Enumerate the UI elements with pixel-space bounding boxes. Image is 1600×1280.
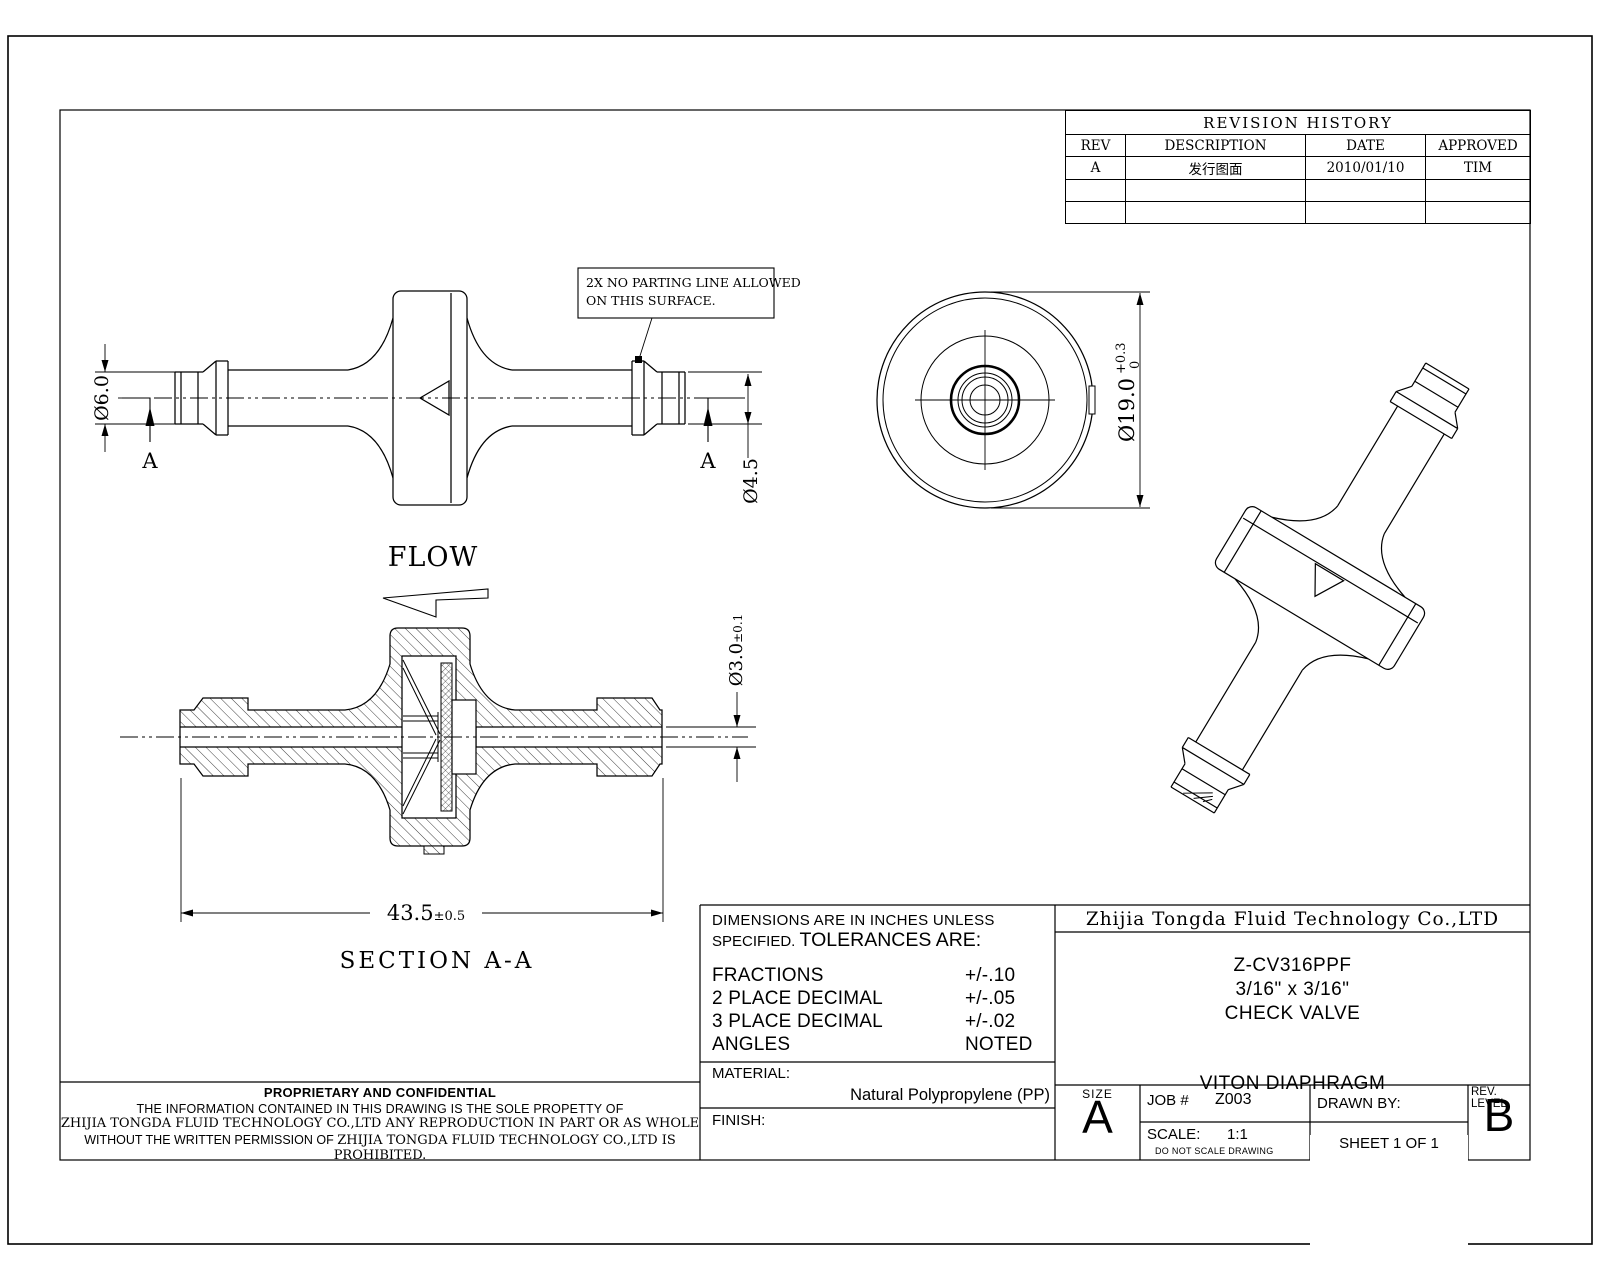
tolerance-row: 3 PLACE DECIMAL+/-.02 xyxy=(712,1011,1042,1033)
revision-table-title: REVISION HISTORY xyxy=(1066,111,1531,135)
body-tab xyxy=(424,846,444,854)
rev-cell: A xyxy=(1066,157,1126,179)
date-cell: 2010/01/10 xyxy=(1306,157,1426,179)
dim-dia3: Ø3.0 xyxy=(726,643,747,686)
dim-dia3-tol: ±0.1 xyxy=(731,614,745,643)
svg-text:43.5±0.5: 43.5±0.5 xyxy=(387,901,465,925)
proprietary-block: PROPRIETARY AND CONFIDENTIAL THE INFORMA… xyxy=(60,1082,700,1160)
flow-annotation: FLOW xyxy=(383,542,488,617)
side-view xyxy=(118,291,745,505)
col-header-rev: REV xyxy=(1066,135,1126,157)
flow-label: FLOW xyxy=(388,542,479,573)
company-name: Zhijia Tongda Fluid Technology Co.,LTD xyxy=(1055,909,1530,930)
tolerance-row: FRACTIONS+/-.10 xyxy=(712,965,1042,987)
dim-dia19: Ø19.0 xyxy=(1115,378,1139,442)
svg-text:Ø3.0±0.1: Ø3.0±0.1 xyxy=(726,614,747,687)
rev-level-value: B xyxy=(1468,1091,1530,1139)
dim-dia19-tol-lower: 0 xyxy=(1128,361,1143,369)
dim-length-tol: ±0.5 xyxy=(434,909,466,924)
proprietary-title: PROPRIETARY AND CONFIDENTIAL xyxy=(60,1085,700,1100)
isometric-view xyxy=(1104,323,1537,854)
dim-dia19-group: Ø19.0 +0.3 0 xyxy=(1114,342,1143,442)
section-marker-right: A xyxy=(699,449,716,473)
tolerance-row: 2 PLACE DECIMAL+/-.05 xyxy=(712,988,1042,1010)
leader-target-dot xyxy=(635,356,642,363)
tolerance-line2: SPECIFIED. TOLERANCES ARE: xyxy=(712,929,981,952)
drawing-sheet: Ø6.0 Ø4.5 A A 2X NO PARTING LINE ALLOWED… xyxy=(0,0,1600,1280)
note-line2: ON THIS SURFACE. xyxy=(586,293,716,308)
table-row: A 发行图面 2010/01/10 TIM xyxy=(1066,157,1531,179)
front-view xyxy=(877,292,1150,508)
size-value: A xyxy=(1055,1093,1140,1141)
part-size: 3/16" x 3/16" xyxy=(1055,979,1530,1001)
dim-dia19-tol-upper: +0.3 xyxy=(1114,342,1129,374)
job-label: JOB # xyxy=(1147,1092,1189,1109)
dim-dia6: Ø6.0 xyxy=(91,375,113,421)
revision-table: REVISION HISTORY REV DESCRIPTION DATE AP… xyxy=(1065,110,1530,224)
tolerance-row: ANGLESNOTED xyxy=(712,1034,1042,1056)
part-type: CHECK VALVE xyxy=(1055,1003,1530,1025)
sheet-label: SHEET 1 OF 1 xyxy=(1310,1135,1468,1280)
proprietary-line3: WITHOUT THE WRITTEN PERMISSION OF ZHIJIA… xyxy=(60,1133,700,1163)
job-value: Z003 xyxy=(1215,1091,1251,1109)
table-row-empty xyxy=(1066,201,1531,223)
col-header-date: DATE xyxy=(1306,135,1426,157)
col-header-description: DESCRIPTION xyxy=(1126,135,1306,157)
dim-length: 43.5 xyxy=(387,901,434,925)
section-view xyxy=(120,628,748,854)
material-value: Natural Polypropylene (PP) xyxy=(795,1086,1050,1105)
section-marker-left: A xyxy=(141,449,158,473)
scale-label: SCALE: xyxy=(1147,1126,1200,1143)
approved-cell: TIM xyxy=(1426,157,1531,179)
material-label: MATERIAL: xyxy=(712,1065,790,1082)
col-header-approved: APPROVED xyxy=(1426,135,1531,157)
note-line1: 2X NO PARTING LINE ALLOWED xyxy=(586,275,801,290)
tolerance-line1: DIMENSIONS ARE IN INCHES UNLESS xyxy=(712,912,995,929)
tolerance-block: DIMENSIONS ARE IN INCHES UNLESS SPECIFIE… xyxy=(700,905,1055,1160)
drawn-by-label: DRAWN BY: xyxy=(1317,1095,1401,1112)
description-cell: 发行图面 xyxy=(1126,157,1306,179)
gate-mark xyxy=(1089,386,1095,414)
proprietary-line2: ZHIJIA TONGDA FLUID TECHNOLOGY CO.,LTD A… xyxy=(60,1116,700,1131)
proprietary-line1: THE INFORMATION CONTAINED IN THIS DRAWIN… xyxy=(60,1102,700,1116)
scale-value: 1:1 xyxy=(1227,1126,1248,1143)
finish-label: FINISH: xyxy=(712,1112,765,1129)
note-box: 2X NO PARTING LINE ALLOWED ON THIS SURFA… xyxy=(578,268,801,363)
dim-dia45: Ø4.5 xyxy=(740,458,762,504)
flow-arrow xyxy=(383,589,488,617)
scale-note: DO NOT SCALE DRAWING xyxy=(1155,1146,1274,1156)
section-title: SECTION A-A xyxy=(340,948,535,974)
title-block: Zhijia Tongda Fluid Technology Co.,LTD Z… xyxy=(1055,905,1530,1160)
part-number: Z-CV316PPF xyxy=(1055,955,1530,977)
table-row-empty xyxy=(1066,179,1531,201)
